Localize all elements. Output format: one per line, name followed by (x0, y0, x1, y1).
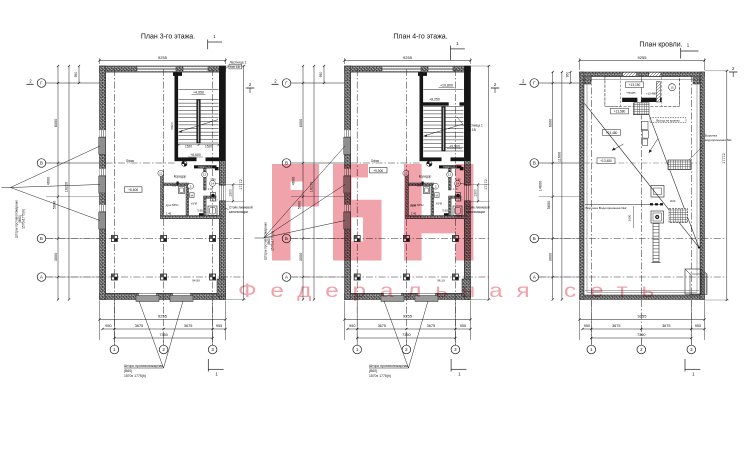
svg-text:Федеральная сеть: Федеральная сеть (238, 280, 668, 302)
